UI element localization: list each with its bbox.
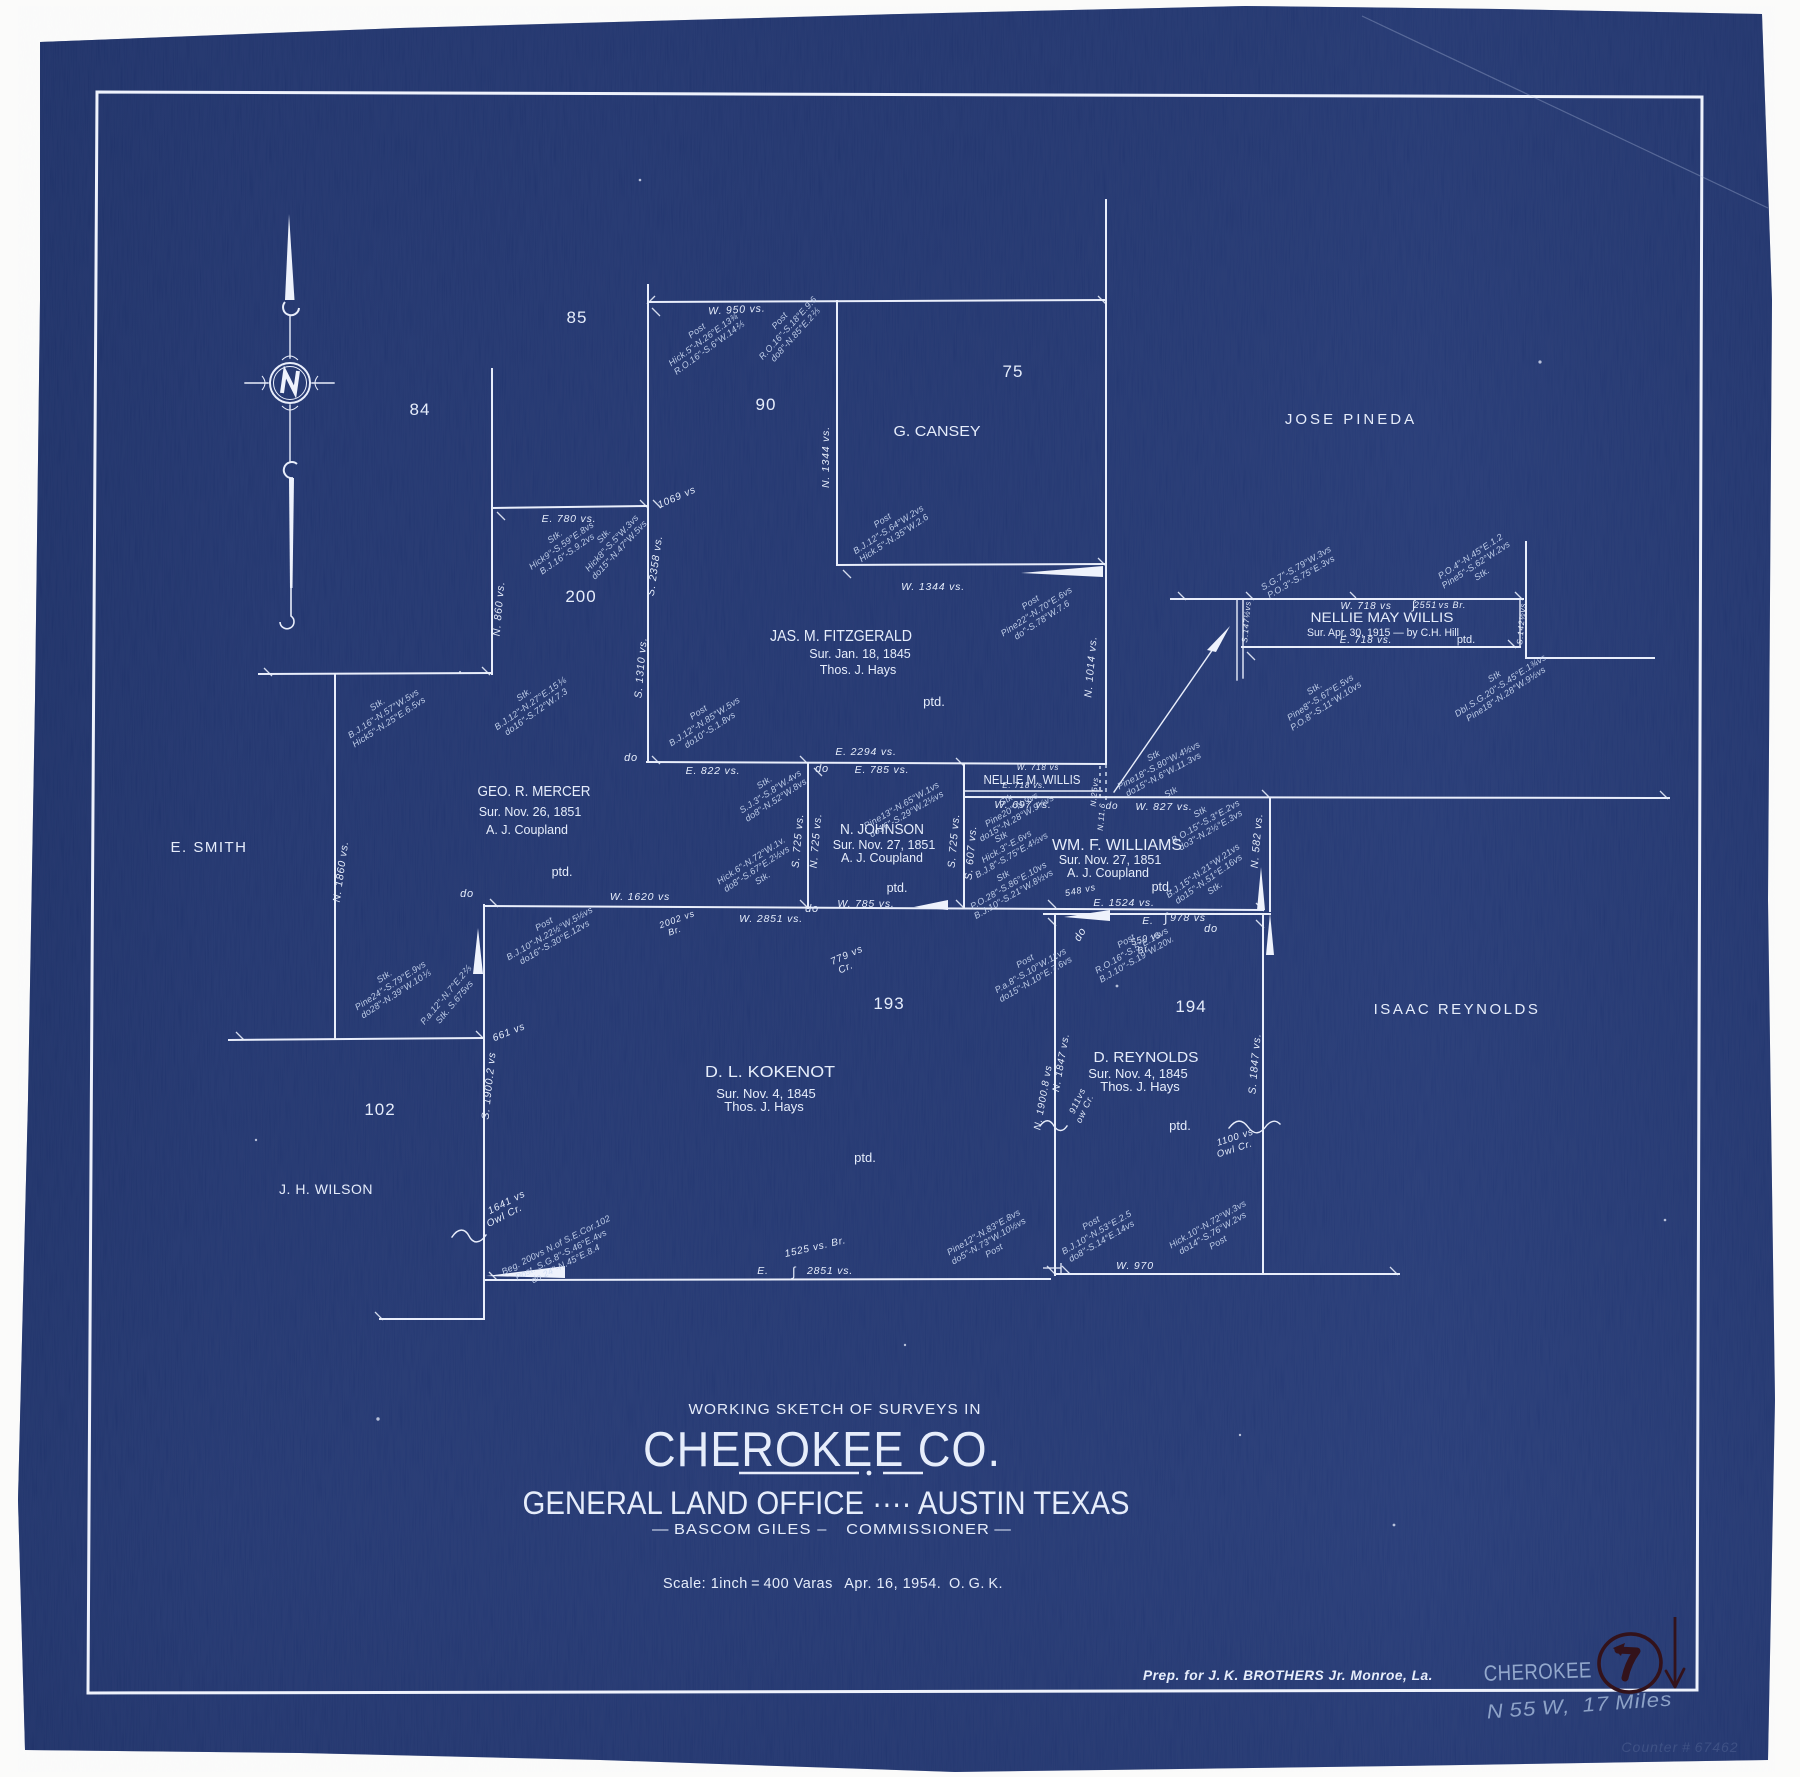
svg-text:193: 193 — [873, 994, 904, 1013]
svg-text:Sur. Nov. 27, 1851: Sur. Nov. 27, 1851 — [833, 838, 936, 852]
svg-text:D. L. KOKENOT: D. L. KOKENOT — [705, 1064, 835, 1081]
svg-text:WORKING SKETCH OF SURVEYS: WORKING SKETCH OF SURVEYS IN — [689, 1401, 982, 1418]
svg-text:∫: ∫ — [1411, 598, 1416, 612]
svg-text:85: 85 — [567, 308, 588, 327]
svg-text:W. 785 vs.: W. 785 vs. — [837, 898, 894, 910]
svg-text:75: 75 — [1003, 362, 1024, 381]
svg-text:W. 718 vs: W. 718 vs — [1017, 763, 1059, 772]
svg-text:do: do — [624, 752, 638, 764]
svg-text:G. CANSEY: G. CANSEY — [894, 423, 981, 440]
svg-text:E. 718 vs.: E. 718 vs. — [1002, 781, 1046, 790]
svg-text:do: do — [815, 763, 829, 775]
svg-text:Prep. for J. K. BROTHERS Jr. M: Prep. for J. K. BROTHERS Jr. Monroe, La. — [1143, 1667, 1433, 1683]
svg-text:E.: E. — [1142, 915, 1154, 927]
svg-text:Thos. J. Hays: Thos. J. Hays — [724, 1099, 804, 1114]
svg-text:∫: ∫ — [791, 1264, 797, 1279]
svg-text:JAS. M. FITZGERALD: JAS. M. FITZGERALD — [770, 628, 912, 645]
svg-text:CHEROKEE CO.: CHEROKEE CO. — [643, 1423, 1001, 1477]
svg-text:ptd.: ptd. — [887, 881, 908, 895]
svg-text:2551 vs Br.: 2551 vs Br. — [1413, 600, 1466, 610]
svg-text:90: 90 — [756, 395, 777, 414]
svg-text:do: do — [460, 888, 474, 900]
svg-text:2851 vs.: 2851 vs. — [806, 1265, 853, 1277]
svg-text:ptd.: ptd. — [552, 865, 573, 879]
svg-text:102: 102 — [364, 1100, 395, 1119]
svg-text:A. J. Coupland: A. J. Coupland — [841, 851, 923, 865]
svg-text:ptd.: ptd. — [854, 1150, 876, 1165]
svg-text:J. H. WILSON: J. H. WILSON — [279, 1181, 373, 1197]
svg-text:D. REYNOLDS: D. REYNOLDS — [1094, 1049, 1199, 1066]
svg-text:ptd.: ptd. — [1457, 634, 1475, 646]
svg-text:Sur. Nov. 27, 1851: Sur. Nov. 27, 1851 — [1059, 853, 1162, 867]
svg-text:GEO. R. MERCER: GEO. R. MERCER — [478, 783, 591, 800]
svg-text:do: do — [1106, 801, 1119, 812]
svg-text:W. 1620 vs: W. 1620 vs — [610, 891, 670, 903]
svg-text:E. 1524 vs.: E. 1524 vs. — [1093, 897, 1154, 909]
svg-text:JOSE PINEDA: JOSE PINEDA — [1285, 411, 1417, 428]
svg-text:ISAAC REYNOLDS: ISAAC REYNOLDS — [1374, 1001, 1541, 1018]
svg-text:W. 718 vs: W. 718 vs — [1340, 601, 1391, 612]
svg-text:E. 718 vs.: E. 718 vs. — [1340, 635, 1392, 646]
svg-text:Thos. J. Hays: Thos. J. Hays — [820, 663, 896, 677]
svg-text:do: do — [805, 903, 819, 915]
svg-text:W. 2851 vs.: W. 2851 vs. — [739, 913, 803, 925]
svg-text:WM. F. WILLIAMS: WM. F. WILLIAMS — [1052, 837, 1182, 854]
svg-text:978 vs: 978 vs — [1170, 912, 1206, 924]
svg-text:GENERAL LAND OFFICE ···· AUSTI: GENERAL LAND OFFICE ···· AUSTIN TEXAS — [523, 1485, 1130, 1521]
svg-text:ptd.: ptd. — [1169, 1118, 1191, 1133]
svg-text:Thos. J. Hays: Thos. J. Hays — [1100, 1079, 1180, 1094]
svg-text:Sur. Jan. 18, 1845: Sur. Jan. 18, 1845 — [809, 647, 911, 661]
svg-text:A. J. Coupland: A. J. Coupland — [486, 823, 568, 837]
svg-text:E. SMITH: E. SMITH — [170, 839, 247, 856]
svg-text:Sur. Nov. 26, 1851: Sur. Nov. 26, 1851 — [479, 805, 582, 819]
svg-text:— BASCOM GILES – COMMISSION: — BASCOM GILES – COMMISSIONER — — [652, 1521, 1012, 1538]
svg-text:84: 84 — [410, 400, 431, 419]
svg-text:do: do — [1204, 923, 1218, 935]
svg-text:ptd.: ptd. — [923, 694, 945, 709]
svg-text:E.: E. — [757, 1265, 769, 1277]
svg-text:W. 1344 vs.: W. 1344 vs. — [901, 581, 965, 593]
svg-text:W. 827 vs.: W. 827 vs. — [1135, 801, 1192, 813]
svg-text:E. 2294 vs.: E. 2294 vs. — [835, 746, 896, 758]
svg-text:E. 822 vs.: E. 822 vs. — [686, 765, 741, 777]
svg-text:N. 1344 vs.: N. 1344 vs. — [820, 426, 832, 488]
svg-text:200: 200 — [565, 587, 596, 606]
svg-text:CHEROKEE: CHEROKEE — [1483, 1657, 1592, 1686]
svg-text:A. J. Coupland: A. J. Coupland — [1067, 866, 1149, 880]
svg-text:Counter # 67462: Counter # 67462 — [1621, 1739, 1738, 1755]
svg-text:∫: ∫ — [1163, 910, 1169, 925]
svg-text:E. 785 vs.: E. 785 vs. — [855, 764, 910, 776]
svg-text:W. 970: W. 970 — [1116, 1260, 1154, 1272]
svg-text:194: 194 — [1175, 997, 1206, 1016]
svg-text:Scale: 1inch = 400 Varas Apr.: Scale: 1inch = 400 Varas Apr. 16, 1954. … — [663, 1576, 1003, 1592]
